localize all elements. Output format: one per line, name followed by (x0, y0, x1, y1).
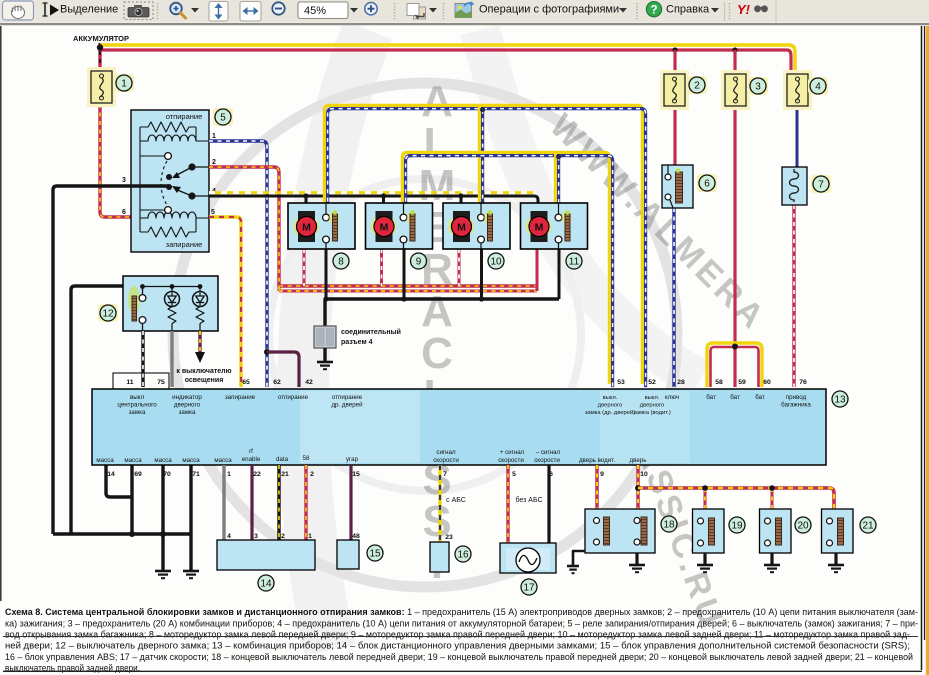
svg-text:Y!: Y! (737, 2, 751, 17)
svg-text:15: 15 (352, 471, 360, 478)
svg-text:замка: замка (179, 409, 196, 416)
svg-text:индикатор: индикатор (172, 394, 202, 401)
svg-text:скорости: скорости (498, 457, 524, 464)
svg-text:M: M (535, 222, 544, 234)
svg-text:масса: масса (182, 457, 200, 464)
svg-text:M: M (380, 222, 389, 234)
svg-text:11: 11 (569, 257, 580, 268)
svg-text:65: 65 (242, 379, 250, 386)
svg-text:1: 1 (212, 133, 216, 140)
svg-text:2: 2 (694, 81, 700, 92)
svg-text:масса: масса (154, 457, 172, 464)
svg-text:5: 5 (220, 113, 226, 124)
svg-text:11: 11 (126, 379, 133, 386)
svg-text:1: 1 (308, 533, 312, 540)
svg-text:18: 18 (663, 520, 675, 531)
svg-text:45%: 45% (304, 5, 326, 17)
svg-text:71: 71 (192, 471, 200, 478)
svg-text:Справка: Справка (666, 3, 710, 15)
svg-text:?: ? (650, 5, 657, 17)
svg-text:15: 15 (369, 549, 381, 560)
svg-text:дверного: дверного (598, 403, 622, 409)
svg-text:21: 21 (862, 521, 874, 532)
svg-text:запирание: запирание (166, 240, 203, 249)
svg-text:14: 14 (260, 579, 272, 590)
svg-text:3: 3 (755, 82, 761, 93)
svg-text:13: 13 (834, 395, 846, 406)
svg-text:Выделение: Выделение (60, 3, 118, 15)
svg-text:дверь: дверь (630, 457, 647, 464)
svg-text:12: 12 (102, 309, 114, 320)
svg-text:52: 52 (648, 379, 656, 386)
svg-text:бат: бат (730, 394, 740, 401)
svg-text:Схема 8. Система центральной б: Схема 8. Система центральной блокировки … (5, 607, 918, 617)
svg-text:отпирание: отпирание (166, 112, 203, 121)
svg-text:АККУМУЛЯТОР: АККУМУЛЯТОР (73, 34, 129, 43)
svg-text:сигнал: сигнал (436, 449, 456, 456)
svg-text:17: 17 (523, 583, 535, 594)
svg-text:выкл: выкл (130, 394, 145, 401)
svg-text:7: 7 (818, 180, 824, 191)
svg-text:22: 22 (253, 471, 261, 478)
svg-text:замка: замка (129, 409, 146, 416)
svg-text:масса: масса (124, 457, 142, 464)
svg-text:бат: бат (755, 394, 765, 401)
svg-text:6: 6 (704, 179, 710, 190)
svg-text:– сигнал: – сигнал (536, 449, 561, 456)
svg-text:+ сигнал: + сигнал (500, 449, 525, 456)
svg-text:ключ: ключ (665, 394, 679, 401)
svg-text:rf: rf (249, 448, 253, 455)
svg-text:разъем 4: разъем 4 (341, 339, 373, 346)
svg-text:58: 58 (715, 379, 723, 386)
svg-text:62: 62 (273, 379, 281, 386)
svg-text:4: 4 (815, 82, 821, 93)
svg-text:53: 53 (617, 379, 625, 386)
svg-text:76: 76 (799, 379, 807, 386)
svg-text:60: 60 (763, 379, 771, 386)
svg-text:data: data (276, 456, 289, 463)
svg-text:48: 48 (352, 533, 360, 540)
svg-text:замка (др. дверей): замка (др. дверей) (585, 409, 635, 416)
svg-text:угар: угар (346, 456, 359, 463)
svg-text:ка) зажигания; 3 – предохранит: ка) зажигания; 3 – предохранитель (20 А)… (5, 618, 918, 628)
svg-text:10: 10 (490, 257, 502, 268)
svg-text:соединительный: соединительный (341, 328, 401, 336)
svg-text:4: 4 (227, 533, 231, 540)
svg-text:запирание: запирание (225, 394, 256, 401)
svg-text:центрального: центрального (117, 402, 157, 409)
svg-text:дверь водит.: дверь водит. (579, 457, 615, 464)
svg-text:21: 21 (281, 471, 289, 478)
svg-text:9: 9 (416, 257, 422, 268)
svg-text:с АБС: с АБС (446, 497, 466, 504)
svg-text:2: 2 (310, 471, 314, 478)
svg-text:багажника: багажника (781, 402, 811, 409)
svg-text:6: 6 (122, 209, 126, 216)
svg-text:14: 14 (107, 471, 115, 478)
svg-text:масса: масса (96, 457, 114, 464)
svg-text:др. дверей: др. дверей (331, 402, 363, 409)
svg-text:3: 3 (122, 177, 126, 184)
svg-text:28: 28 (677, 379, 685, 386)
svg-text:к выключателю: к выключателю (176, 368, 231, 375)
svg-text:масса: масса (214, 457, 232, 464)
svg-text:16 – блок управления ABS; 17 –: 16 – блок управления ABS; 17 – датчик ск… (5, 652, 913, 662)
svg-text:75: 75 (157, 379, 165, 386)
svg-text:8: 8 (338, 257, 344, 268)
svg-text:бат: бат (706, 394, 716, 401)
svg-text:выкл.: выкл. (645, 395, 660, 401)
svg-text:58: 58 (303, 455, 310, 462)
svg-text:ней двери; 12 – выключатель дв: ней двери; 12 – выключатель дверного зам… (5, 641, 910, 651)
svg-text:без АБС: без АБС (515, 496, 542, 504)
svg-text:вод открывания замка багажника: вод открывания замка багажника; 8 – мото… (5, 630, 910, 640)
svg-text:1: 1 (227, 471, 231, 478)
svg-text:дверного: дверного (640, 403, 664, 409)
svg-text:70: 70 (163, 471, 171, 478)
svg-text:замка (водит.): замка (водит.) (633, 410, 671, 416)
svg-text:отпирание: отпирание (278, 394, 309, 401)
svg-text:19: 19 (731, 521, 743, 532)
svg-text:дверного: дверного (174, 402, 201, 409)
svg-text:M: M (457, 222, 466, 234)
svg-text:Операции с фотографиями: Операции с фотографиями (479, 3, 619, 15)
svg-text:выкл.: выкл. (603, 395, 618, 401)
svg-text:10: 10 (640, 471, 648, 478)
svg-text:59: 59 (738, 379, 746, 386)
svg-text:enable: enable (242, 456, 261, 463)
svg-text:5: 5 (211, 209, 215, 216)
svg-text:2: 2 (281, 533, 285, 540)
svg-text:отпирание: отпирание (332, 394, 363, 401)
svg-text:20: 20 (797, 521, 809, 532)
svg-text:M: M (302, 222, 311, 234)
svg-text:69: 69 (134, 471, 142, 478)
svg-text:3: 3 (254, 533, 258, 540)
svg-text:1: 1 (121, 79, 127, 90)
svg-text:освещения: освещения (185, 377, 224, 384)
svg-text:9: 9 (600, 471, 604, 478)
svg-text:23: 23 (445, 534, 453, 541)
svg-text:скорости: скорости (534, 457, 560, 464)
svg-text:2: 2 (212, 159, 216, 166)
svg-text:привод: привод (786, 394, 807, 401)
svg-text:5: 5 (512, 471, 516, 478)
svg-text:42: 42 (305, 379, 313, 386)
svg-text:16: 16 (457, 550, 469, 561)
svg-text:7: 7 (443, 471, 447, 478)
svg-text:скорости: скорости (433, 457, 459, 464)
